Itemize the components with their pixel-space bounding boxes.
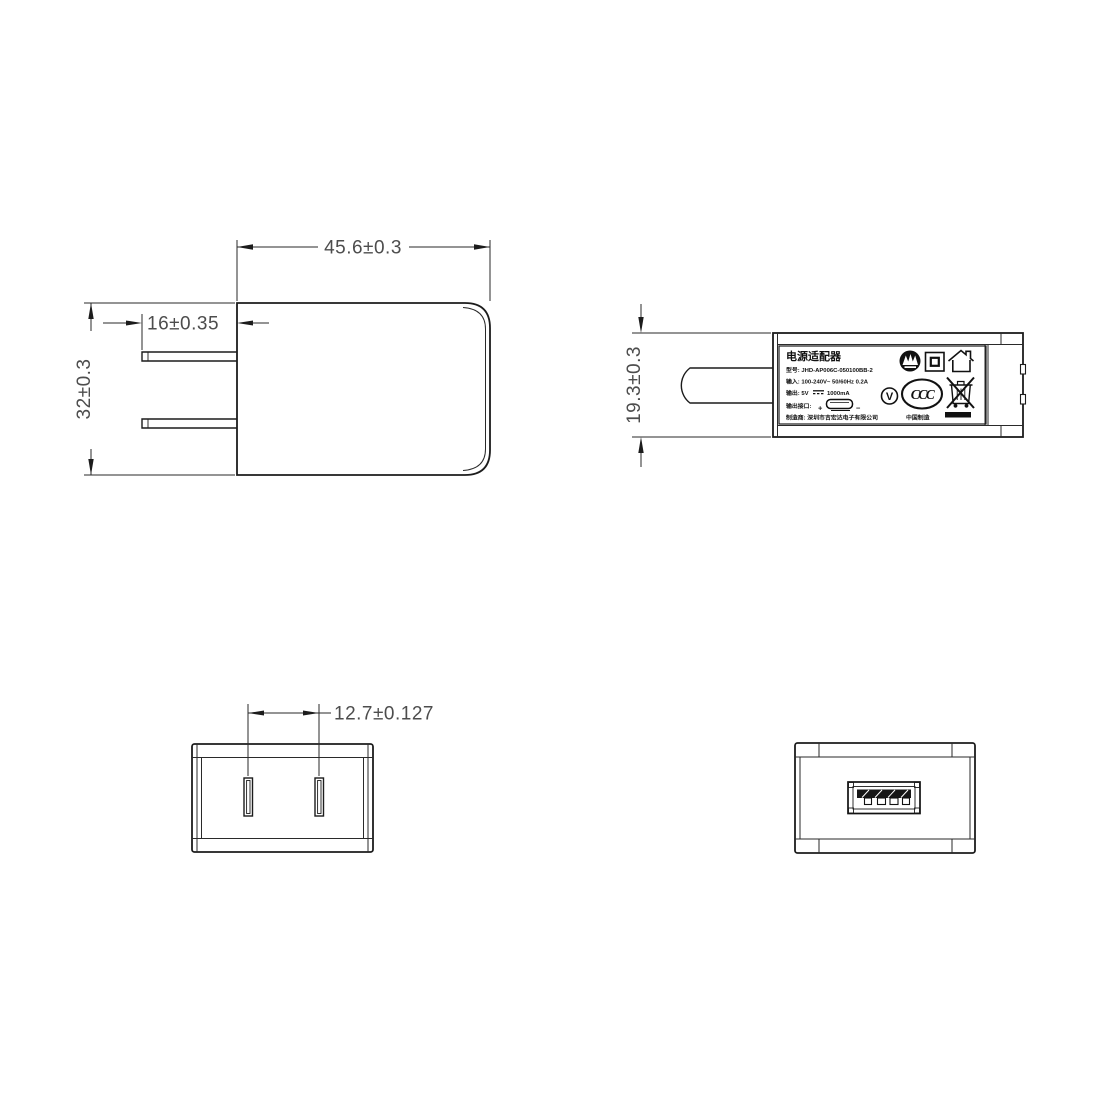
dc-symbol-icon xyxy=(813,391,824,394)
dim-text-prong-length: 16±0.35 xyxy=(147,314,219,335)
label-made-in: 中国制造 xyxy=(906,414,930,422)
plug-face-view: 12.7±0.127 xyxy=(192,704,434,853)
arrowhead xyxy=(638,317,643,333)
lower-prong xyxy=(142,419,237,428)
label-port: 输出接口: xyxy=(786,402,812,410)
front-body-outline xyxy=(237,303,490,475)
dim-body-width: 45.6±0.3 xyxy=(237,238,490,302)
weee-bar xyxy=(945,412,971,418)
efficiency-level-icon: V xyxy=(882,388,898,404)
usb-edge-notch xyxy=(1021,395,1026,405)
arrowhead xyxy=(88,303,93,319)
dim-text-body-width: 45.6±0.3 xyxy=(324,238,402,259)
side-view: 19.3±0.3 电源适配器 型号: JHD-AP006C-050100BB-2… xyxy=(624,304,1026,467)
arrowhead xyxy=(303,711,319,716)
usb-contact xyxy=(878,798,886,805)
energy-saving-mark-icon xyxy=(900,351,921,372)
prong-left-end xyxy=(244,778,253,816)
usb-edge-notch xyxy=(1021,365,1026,375)
label-title: 电源适配器 xyxy=(786,349,842,363)
dim-text-prong-spacing: 12.7±0.127 xyxy=(334,704,434,725)
technical-drawing-canvas: 45.6±0.3 16±0.35 32±0.3 xyxy=(0,0,1100,1100)
label-port-minus: − xyxy=(856,404,861,413)
label-manufacturer: 制造商: 深圳市吉宏达电子有限公司 xyxy=(786,414,878,422)
class-ii-insulation-icon xyxy=(926,353,945,372)
usb-port xyxy=(848,782,920,814)
label-port-plus: + xyxy=(818,404,823,413)
arrowhead xyxy=(237,321,253,326)
product-label: 电源适配器 型号: JHD-AP006C-050100BB-2 输入: 100-… xyxy=(779,346,986,424)
dim-prong-length: 16±0.35 xyxy=(103,314,269,351)
arrowhead xyxy=(88,459,93,475)
upper-prong xyxy=(142,352,237,361)
ccc-letters: CCC xyxy=(911,387,936,402)
efficiency-letter: V xyxy=(886,391,894,403)
plug-face-outline xyxy=(192,744,373,852)
arrowhead xyxy=(126,321,142,326)
label-model: 型号: JHD-AP006C-050100BB-2 xyxy=(786,366,873,374)
arrowhead xyxy=(638,437,643,453)
indoor-use-only-icon xyxy=(949,351,974,372)
usb-contact xyxy=(890,798,898,805)
dim-text-body-height: 32±0.3 xyxy=(74,359,95,420)
adapter-drawing-svg: 45.6±0.3 16±0.35 32±0.3 xyxy=(0,0,1100,1100)
ccc-mark-icon: CCC xyxy=(902,380,942,409)
arrowhead xyxy=(248,711,264,716)
arrowhead xyxy=(237,244,253,249)
label-output-current: 1000mA xyxy=(827,391,850,397)
weee-bin-icon xyxy=(947,378,974,409)
label-input: 输入: 100-240V~ 50/60Hz 0.2A xyxy=(786,378,869,386)
usb-plug-icon xyxy=(827,400,853,411)
dim-text-body-thickness: 19.3±0.3 xyxy=(624,346,645,424)
side-prong xyxy=(681,368,773,403)
front-view: 45.6±0.3 16±0.35 32±0.3 xyxy=(74,238,490,476)
label-output: 输出: 5V xyxy=(786,389,809,397)
prong-right-end xyxy=(315,778,324,816)
arrowhead xyxy=(474,244,490,249)
usb-contact xyxy=(903,798,910,805)
usb-contact xyxy=(865,798,872,805)
dim-body-thickness: 19.3±0.3 xyxy=(624,304,771,467)
usb-face-view xyxy=(795,743,975,853)
usb-tongue xyxy=(857,790,911,799)
dim-prong-spacing: 12.7±0.127 xyxy=(248,704,434,777)
front-end-cap-seam xyxy=(463,308,486,471)
